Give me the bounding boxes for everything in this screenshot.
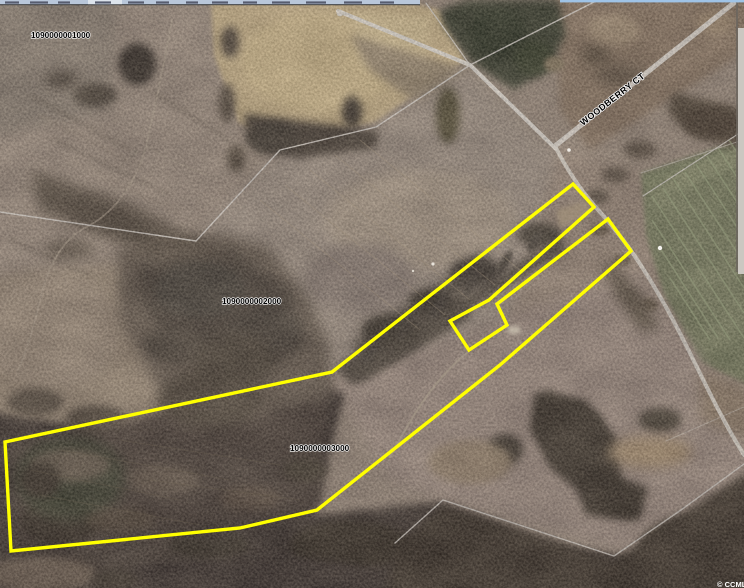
svg-text:1090000002000: 1090000002000 xyxy=(222,297,282,306)
svg-text:© CCML: © CCML xyxy=(717,580,744,588)
svg-text:1090000003000: 1090000003000 xyxy=(290,444,350,453)
svg-text:1090000001000: 1090000001000 xyxy=(31,31,91,40)
